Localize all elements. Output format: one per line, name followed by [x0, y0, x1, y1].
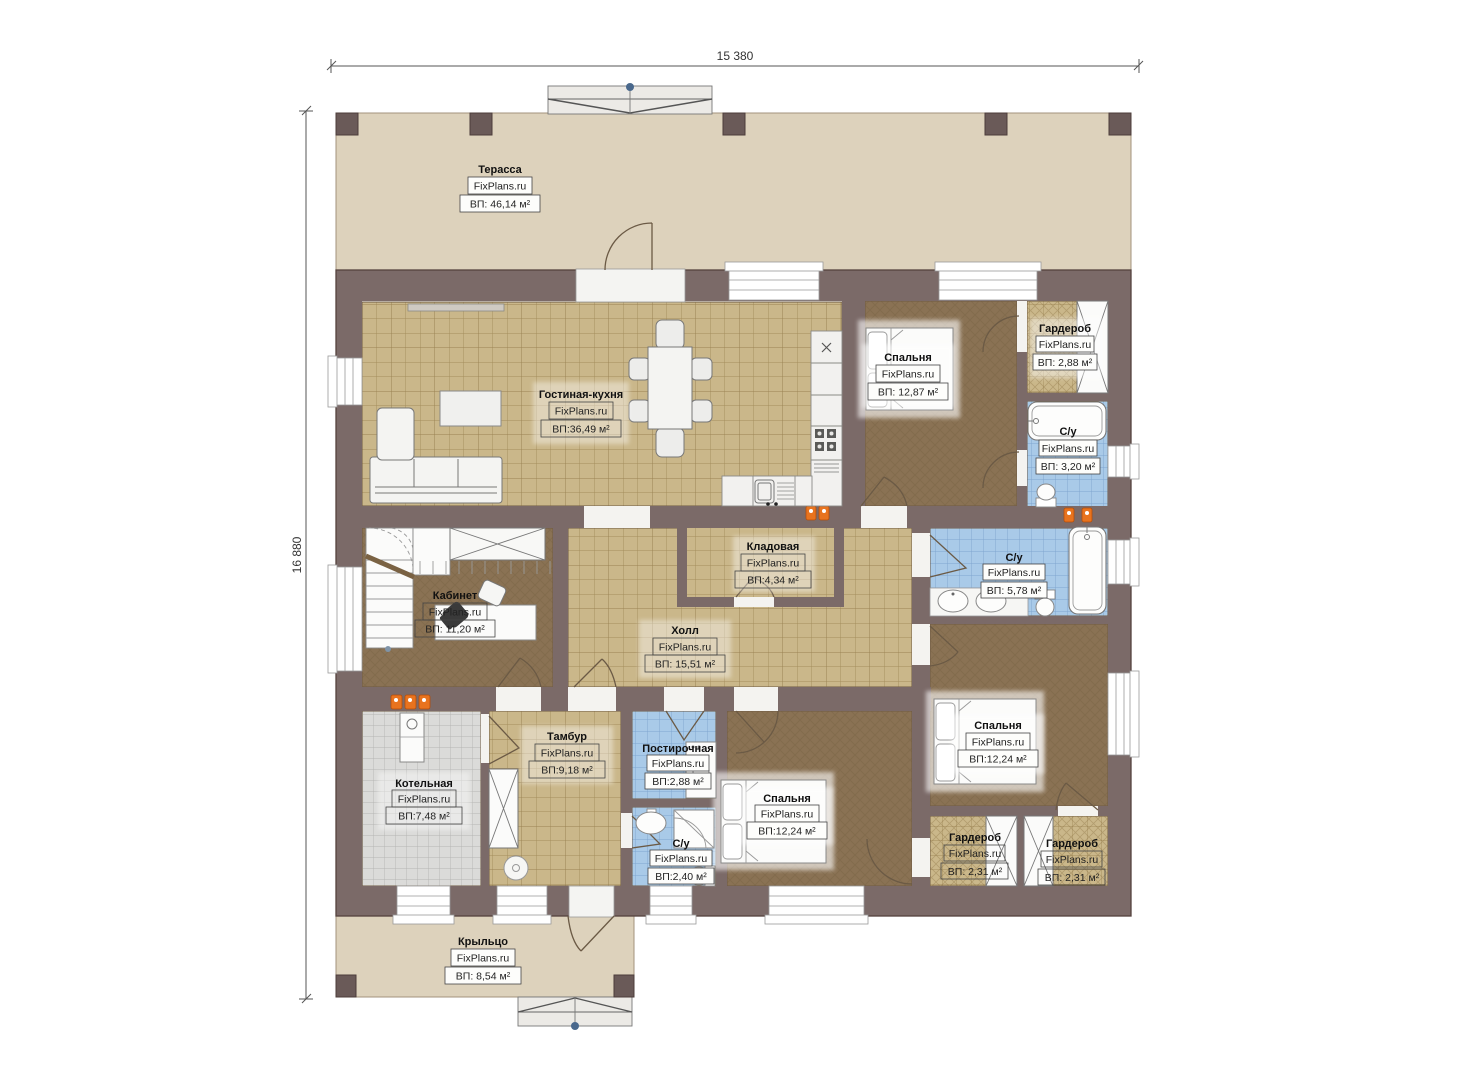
svg-text:Гардероб: Гардероб — [1046, 838, 1098, 850]
svg-text:FixPlans.ru: FixPlans.ru — [882, 369, 935, 381]
svg-text:Гардероб: Гардероб — [949, 832, 1001, 844]
svg-text:FixPlans.ru: FixPlans.ru — [949, 848, 1002, 860]
svg-text:FixPlans.ru: FixPlans.ru — [747, 558, 800, 570]
svg-text:ВП: 2,88 м²: ВП: 2,88 м² — [1038, 357, 1093, 369]
svg-text:Тамбур: Тамбур — [547, 731, 587, 743]
svg-text:Гардероб: Гардероб — [1039, 323, 1091, 335]
svg-text:FixPlans.ru: FixPlans.ru — [761, 809, 814, 821]
svg-text:Спальня: Спальня — [884, 352, 932, 364]
svg-text:FixPlans.ru: FixPlans.ru — [659, 642, 712, 654]
svg-text:ВП: 2,31 м²: ВП: 2,31 м² — [948, 866, 1003, 878]
svg-text:ВП:12,24 м²: ВП:12,24 м² — [969, 754, 1027, 766]
svg-text:FixPlans.ru: FixPlans.ru — [1046, 854, 1099, 866]
svg-text:FixPlans.ru: FixPlans.ru — [429, 607, 482, 619]
svg-text:FixPlans.ru: FixPlans.ru — [652, 758, 705, 770]
svg-text:Гостиная-кухня: Гостиная-кухня — [539, 389, 623, 401]
svg-text:Терасса: Терасса — [478, 164, 522, 176]
svg-text:ВП:7,48 м²: ВП:7,48 м² — [398, 811, 450, 823]
svg-text:FixPlans.ru: FixPlans.ru — [1039, 339, 1092, 351]
svg-text:Кладовая: Кладовая — [747, 541, 800, 553]
svg-text:Холл: Холл — [671, 625, 699, 637]
svg-text:ВП:2,40 м²: ВП:2,40 м² — [655, 871, 707, 883]
svg-text:FixPlans.ru: FixPlans.ru — [457, 953, 510, 965]
svg-text:ВП:36,49 м²: ВП:36,49 м² — [552, 424, 610, 436]
svg-text:Крыльцо: Крыльцо — [458, 936, 508, 948]
svg-text:Постирочная: Постирочная — [642, 743, 713, 755]
svg-text:FixPlans.ru: FixPlans.ru — [1042, 443, 1095, 455]
svg-text:FixPlans.ru: FixPlans.ru — [398, 794, 451, 806]
svg-text:С/у: С/у — [1005, 552, 1023, 564]
svg-text:FixPlans.ru: FixPlans.ru — [972, 737, 1025, 749]
svg-text:Спальня: Спальня — [974, 720, 1022, 732]
svg-text:16 880: 16 880 — [290, 536, 304, 573]
svg-text:15 380: 15 380 — [717, 49, 754, 63]
svg-text:ВП:4,34 м²: ВП:4,34 м² — [747, 575, 799, 587]
svg-text:FixPlans.ru: FixPlans.ru — [555, 406, 608, 418]
svg-text:ВП: 3,20 м²: ВП: 3,20 м² — [1041, 461, 1096, 473]
svg-text:ВП: 11,20 м²: ВП: 11,20 м² — [425, 624, 485, 636]
svg-text:ВП: 8,54 м²: ВП: 8,54 м² — [456, 971, 511, 983]
svg-text:ВП: 12,87 м²: ВП: 12,87 м² — [878, 387, 939, 399]
svg-text:FixPlans.ru: FixPlans.ru — [541, 748, 594, 760]
svg-text:ВП: 2,31 м²: ВП: 2,31 м² — [1045, 872, 1100, 884]
svg-text:С/у: С/у — [1059, 426, 1077, 438]
svg-text:ВП:2,88 м²: ВП:2,88 м² — [652, 776, 704, 788]
svg-text:ВП: 46,14 м²: ВП: 46,14 м² — [470, 199, 531, 211]
svg-text:ВП:9,18 м²: ВП:9,18 м² — [541, 765, 593, 777]
svg-text:FixPlans.ru: FixPlans.ru — [988, 567, 1041, 579]
svg-text:ВП:12,24 м²: ВП:12,24 м² — [758, 826, 816, 838]
svg-text:Котельная: Котельная — [395, 778, 453, 790]
svg-text:ВП: 15,51 м²: ВП: 15,51 м² — [655, 659, 716, 671]
svg-text:С/у: С/у — [672, 838, 690, 850]
svg-text:Спальня: Спальня — [763, 793, 811, 805]
svg-text:ВП: 5,78 м²: ВП: 5,78 м² — [987, 585, 1042, 597]
svg-text:FixPlans.ru: FixPlans.ru — [474, 181, 527, 193]
svg-text:FixPlans.ru: FixPlans.ru — [655, 853, 708, 865]
svg-text:Кабинет: Кабинет — [433, 590, 478, 602]
